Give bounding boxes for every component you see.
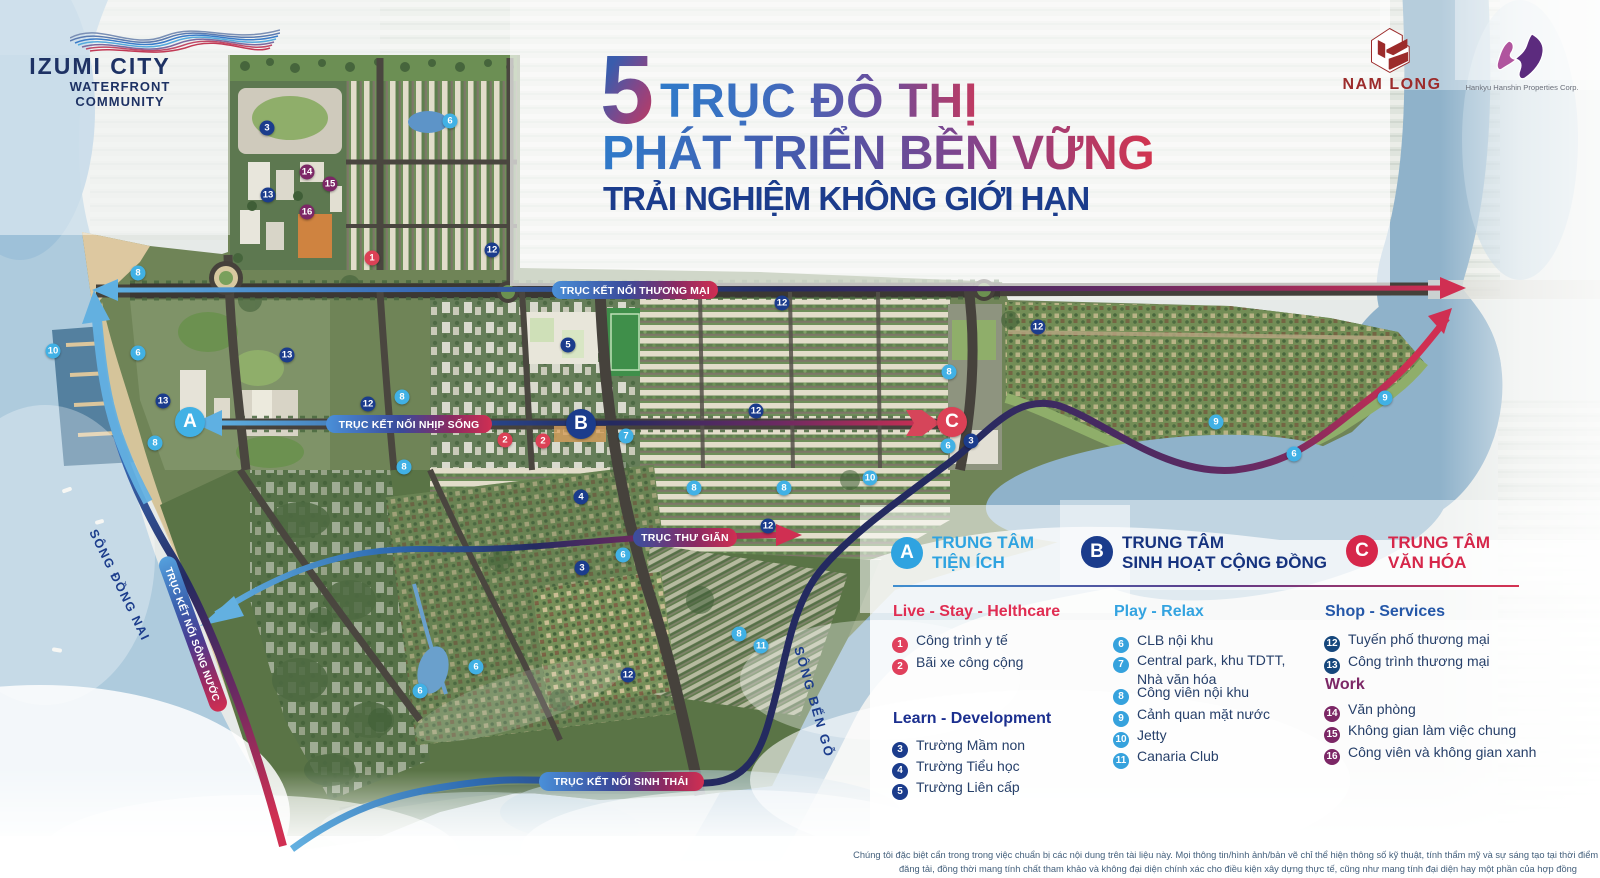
svg-text:TRỤC KẾT NỐI NHỊP SỐNG: TRỤC KẾT NỐI NHỊP SỐNG bbox=[339, 417, 480, 431]
svg-text:TRỤC KẾT NỐI SINH THÁI: TRỤC KẾT NỐI SINH THÁI bbox=[554, 774, 688, 788]
svg-text:TRỤC KẾT NỐI THƯƠNG MẠI: TRỤC KẾT NỐI THƯƠNG MẠI bbox=[560, 283, 709, 297]
svg-text:TRỤC THƯ GIÃN: TRỤC THƯ GIÃN bbox=[641, 531, 729, 544]
